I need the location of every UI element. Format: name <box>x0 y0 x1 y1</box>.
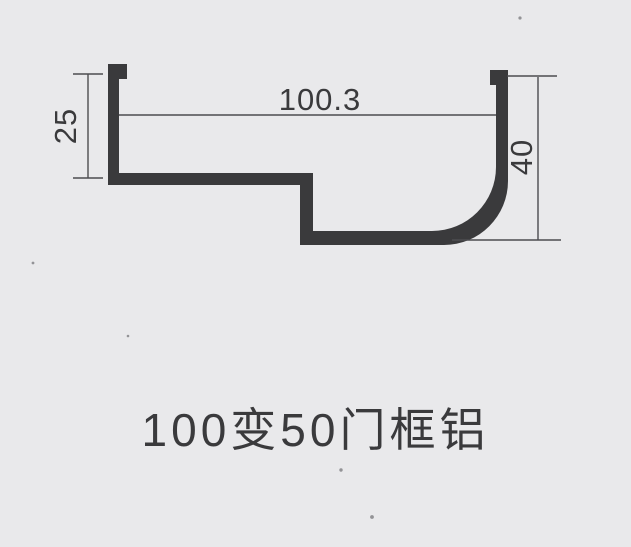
scan-speck <box>518 16 521 19</box>
scan-speck <box>127 335 130 338</box>
dimension-label-width-top: 100.3 <box>279 82 362 117</box>
dimension-height-left: 25 <box>48 74 103 178</box>
profile-drawing: 100.3 25 40 <box>0 0 631 547</box>
dimension-label-height-right: 40 <box>504 139 539 175</box>
scan-speck <box>370 515 374 519</box>
dimension-label-height-left: 25 <box>48 108 83 144</box>
scan-speck <box>32 262 35 265</box>
drawing-title: 100变50门框铝 <box>0 394 631 460</box>
scan-speck <box>339 468 342 471</box>
scanned-drawing-page: 100.3 25 40 100变50门框铝 <box>0 0 631 547</box>
dimension-width-top: 100.3 <box>119 82 496 117</box>
